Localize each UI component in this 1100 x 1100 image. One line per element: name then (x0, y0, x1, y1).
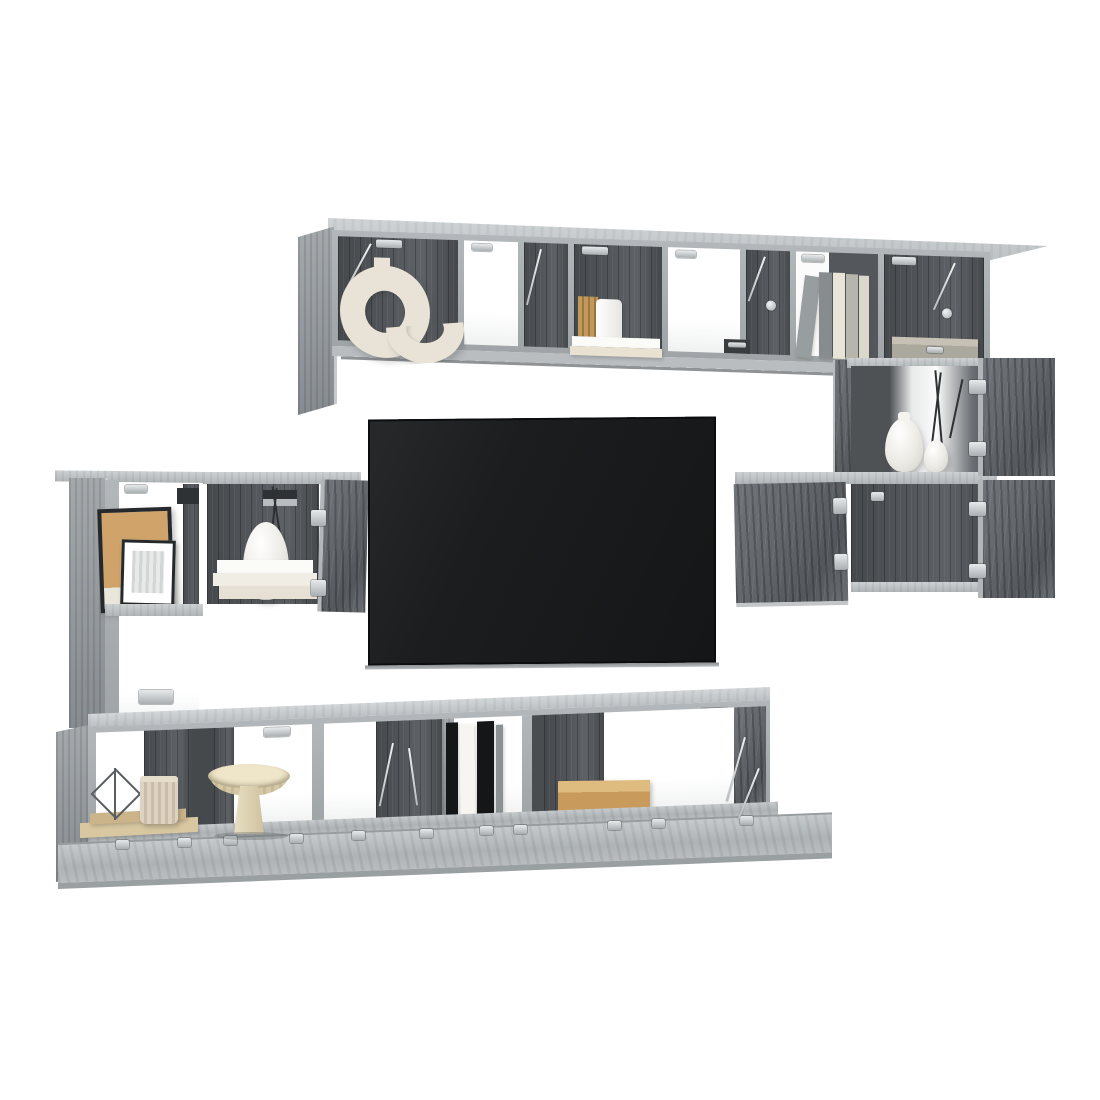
upright-book (819, 272, 832, 358)
flap-hinge (480, 826, 493, 835)
bowl-rim (208, 764, 290, 788)
upright-book (846, 274, 858, 359)
wall-bracket-plate (728, 342, 746, 348)
flap-hinge (178, 838, 191, 847)
white-book (219, 586, 317, 599)
hinge (892, 257, 916, 266)
wall-bracket (263, 490, 297, 506)
hinge (376, 239, 402, 248)
divider (522, 715, 532, 815)
ribbed-pot (140, 776, 178, 824)
folder-black (477, 721, 494, 818)
compartment-back (524, 242, 568, 347)
middle-shelf (105, 604, 203, 616)
canister (596, 299, 622, 340)
flap-hinge (352, 831, 365, 840)
folder-grey (496, 725, 503, 815)
compartment-back (464, 240, 518, 346)
divider (312, 724, 324, 824)
bowl-shadow (214, 832, 288, 840)
hinge (311, 580, 326, 596)
divider-dark (532, 715, 544, 815)
frame-art (131, 551, 164, 594)
hinge (834, 554, 847, 570)
flap-hinge (608, 821, 621, 830)
hinge (969, 502, 986, 516)
hinge (969, 564, 986, 578)
right-cabinet-stack (735, 352, 1053, 610)
hinge (676, 250, 696, 258)
pot-lip (140, 776, 178, 782)
wall-bracket (177, 488, 199, 504)
flap-hinge (420, 829, 433, 838)
open-door-upper-right (978, 358, 1055, 476)
gold-book (578, 296, 598, 337)
hinge (264, 727, 290, 737)
hinge (472, 244, 492, 252)
stay-knob (766, 300, 776, 310)
white-book (213, 573, 317, 586)
compartment-back (668, 247, 740, 353)
bottom-bench-row (52, 690, 852, 905)
picture-frame-small (120, 539, 176, 606)
middle-shelf (735, 472, 997, 484)
upright-book (833, 273, 845, 359)
wire-diamond-line (114, 768, 116, 820)
flap-hinge (740, 816, 753, 825)
hinge (969, 380, 986, 394)
open-door-lower-right (978, 480, 1055, 598)
flap-hinge (116, 840, 129, 849)
stay-knob (942, 308, 952, 318)
vase-neck (898, 412, 910, 421)
folder-white (459, 724, 476, 819)
pedestal-bowl (208, 764, 290, 846)
flap-hinge (514, 825, 527, 834)
ring-sculpture-neck (374, 257, 390, 270)
hinge (125, 485, 147, 493)
folder-black (446, 722, 458, 818)
compartment-floor (851, 582, 989, 592)
white-vase-small (924, 440, 948, 472)
flap-hinge (652, 819, 665, 828)
hinge (969, 442, 986, 456)
hinge (311, 510, 326, 526)
hinge (871, 492, 884, 501)
product-photo (0, 0, 1100, 1100)
upright-book (859, 275, 869, 359)
book-slab (570, 346, 662, 358)
hinge (802, 255, 824, 263)
tv-screen (368, 416, 716, 665)
flap-hinge (290, 834, 303, 843)
open-door-lower-left (734, 482, 849, 607)
tv-bottom-edge (365, 662, 719, 669)
white-book (217, 560, 313, 573)
hinge (582, 246, 608, 255)
hinge (833, 498, 846, 514)
